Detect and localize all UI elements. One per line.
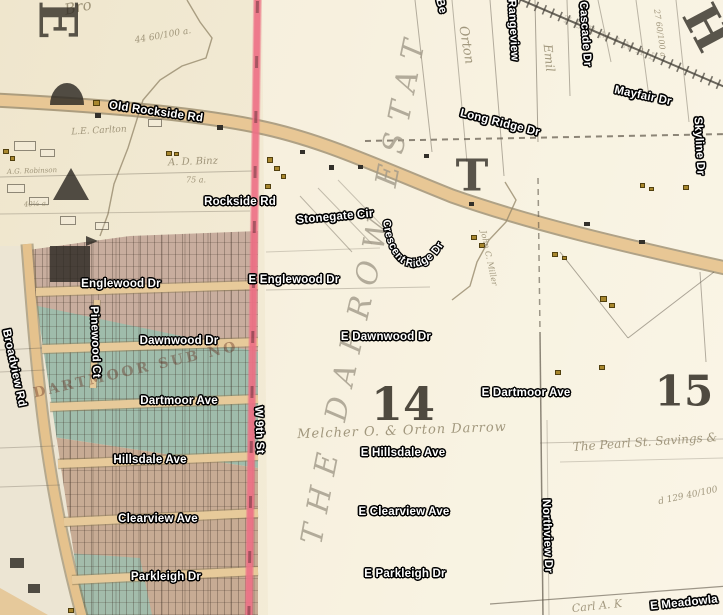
map-canvas[interactable]: THE DARROW ESTATE Crescent Ridge Dr Bro4… [0, 0, 723, 615]
handwriting-40-a: 40½ a. [24, 199, 49, 208]
outline-building [40, 149, 55, 157]
handwriting-bro: Bro [63, 0, 93, 19]
gold-building [3, 149, 9, 154]
gold-building [93, 100, 100, 106]
street-label-old-rockside-rd: Old Rockside Rd [108, 99, 204, 124]
handwriting-44-60-100-a: 44 60/100 a. [134, 26, 192, 46]
parcel-line [0, 171, 252, 177]
outline-building [29, 197, 49, 205]
gold-building [166, 151, 172, 156]
outline-building [14, 141, 36, 151]
plat-letter-e: E [27, 0, 88, 40]
outline-building [60, 216, 76, 225]
outline-building [95, 222, 109, 230]
outline-building [148, 119, 162, 127]
dark-building [217, 125, 223, 130]
outline-building [7, 184, 25, 193]
handwriting-a-g-robinson: A.G. Robinson [7, 166, 57, 176]
creek-line [100, 0, 212, 236]
handwriting-75-a: 75 a. [186, 176, 206, 185]
gold-building [10, 156, 15, 161]
handwriting-a-d-binz: A. D. Binz [168, 156, 218, 169]
handwriting-l-e-carlton: L.E. Carlton [71, 125, 127, 138]
triangle-structure [53, 168, 89, 200]
gold-building [174, 152, 179, 156]
parcel-line [0, 211, 250, 214]
dark-building [95, 113, 101, 118]
arch-structure [50, 83, 84, 105]
